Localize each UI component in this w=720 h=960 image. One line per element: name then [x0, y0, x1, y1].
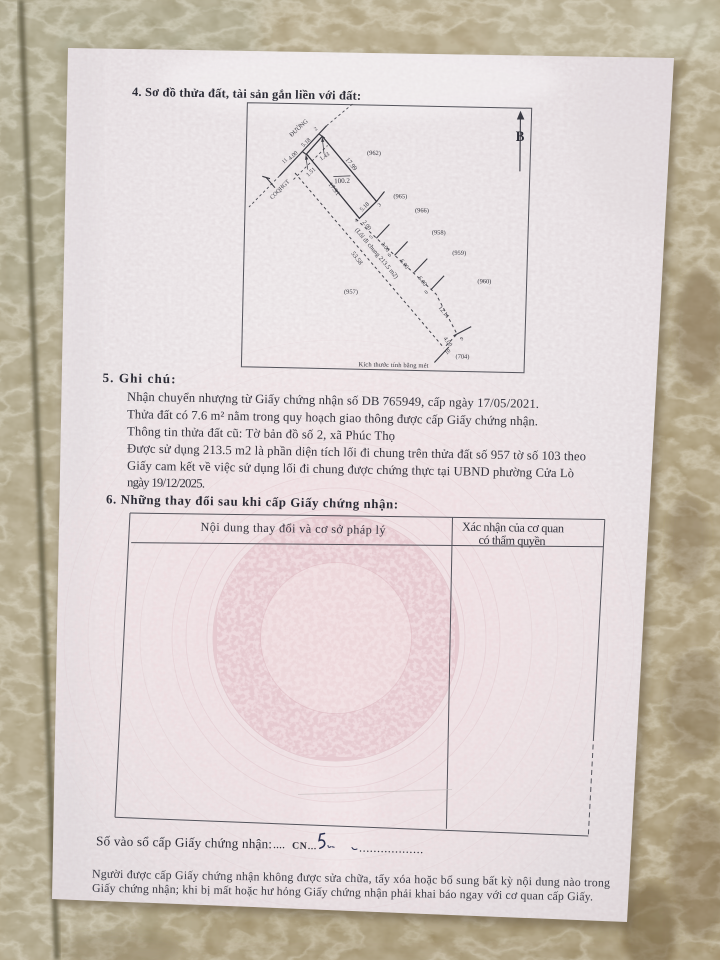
svg-text:(958): (958) [432, 229, 446, 236]
svg-text:Kích thước tính bằng mét: Kích thước tính bằng mét [358, 361, 428, 369]
svg-text:ngày 19/12/2025.: ngày 19/12/2025. [127, 475, 205, 490]
svg-text:có thẩm quyền: có thẩm quyền [478, 533, 545, 548]
svg-text:..................: .................. [359, 841, 424, 857]
svg-text:CN: CN [292, 841, 307, 852]
svg-text:B: B [516, 129, 525, 145]
svg-text:(966): (966) [415, 207, 429, 214]
svg-text:(960): (960) [477, 278, 491, 285]
svg-text:...: ... [307, 838, 316, 852]
svg-text:(704): (704) [456, 353, 470, 360]
svg-text:(962): (962) [367, 150, 381, 157]
svg-text:....: .... [273, 837, 285, 851]
svg-text:Số vào sổ cấp Giấy chứng nhận:: Số vào sổ cấp Giấy chứng nhận: [96, 833, 272, 851]
svg-text:(965): (965) [393, 193, 407, 200]
svg-text:100.2: 100.2 [334, 177, 351, 186]
svg-text:(959): (959) [452, 250, 466, 257]
svg-text:(957): (957) [344, 289, 358, 296]
